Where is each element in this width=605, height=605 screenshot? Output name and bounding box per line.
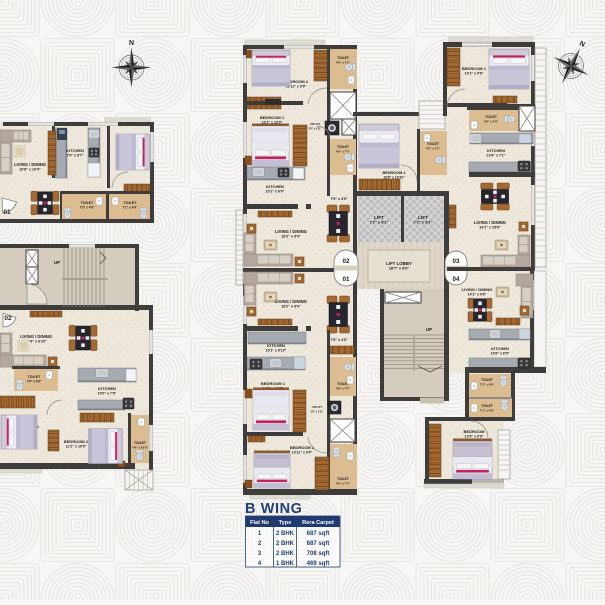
svg-text:UTILITY: UTILITY — [312, 405, 323, 409]
svg-text:03: 03 — [453, 258, 460, 265]
svg-text:469 sqft: 469 sqft — [307, 561, 330, 567]
svg-text:BEDROOM 1: BEDROOM 1 — [462, 66, 487, 71]
svg-text:TOILET: TOILET — [81, 201, 95, 205]
svg-text:7'2" x 8'1": 7'2" x 8'1" — [413, 220, 432, 225]
svg-text:2 BHK: 2 BHK — [276, 531, 295, 537]
svg-text:KITCHEN: KITCHEN — [266, 184, 284, 189]
svg-text:2'6" x 2'11": 2'6" x 2'11" — [309, 128, 322, 131]
svg-text:TOILET: TOILET — [337, 56, 350, 60]
svg-text:4'6" x 7'7": 4'6" x 7'7" — [336, 387, 351, 391]
svg-text:14'1" x 15'6": 14'1" x 15'6" — [479, 226, 501, 230]
svg-text:19'2" x 9'9": 19'2" x 9'9" — [281, 235, 301, 239]
svg-text:13'11" x 9'9": 13'11" x 9'9" — [292, 451, 313, 455]
svg-text:LIVING / DINING: LIVING / DINING — [20, 334, 52, 339]
svg-text:02: 02 — [4, 315, 12, 322]
svg-text:Rera Carpet: Rera Carpet — [302, 520, 334, 526]
svg-text:TOILET: TOILET — [337, 145, 350, 149]
svg-text:BEDROOM: BEDROOM — [464, 429, 486, 434]
svg-text:04: 04 — [453, 276, 460, 283]
svg-text:UP: UP — [54, 260, 60, 265]
svg-text:7'0" x 4'9": 7'0" x 4'9" — [26, 380, 42, 384]
svg-text:4'9" x 10'0": 4'9" x 10'0" — [132, 446, 148, 450]
svg-text:7'1" x 4'9": 7'1" x 4'9" — [122, 206, 138, 210]
svg-text:Flat No: Flat No — [250, 520, 270, 526]
svg-text:BEDROOM 1: BEDROOM 1 — [260, 115, 285, 120]
svg-text:7'1" x 4'6": 7'1" x 4'6" — [480, 383, 495, 387]
svg-text:LIVING / DINING: LIVING / DINING — [474, 220, 506, 225]
svg-text:UP: UP — [426, 327, 432, 332]
svg-text:5'6" x 4'9": 5'6" x 4'9" — [484, 120, 499, 124]
svg-text:7'0" x 4'9": 7'0" x 4'9" — [79, 206, 95, 210]
svg-text:10'4" x 7'1": 10'4" x 7'1" — [487, 154, 506, 158]
svg-text:2'6" x 2'11": 2'6" x 2'11" — [311, 411, 324, 414]
svg-text:TOILET: TOILET — [134, 441, 147, 445]
svg-text:18'7" x 8'0": 18'7" x 8'0" — [389, 266, 410, 271]
svg-text:12'1" x 10'0": 12'1" x 10'0" — [66, 445, 87, 449]
svg-text:TOILET: TOILET — [124, 201, 138, 205]
svg-text:LIVING / DINING: LIVING / DINING — [462, 287, 493, 292]
svg-text:10'1" x 6'10": 10'1" x 6'10" — [266, 349, 287, 353]
svg-text:2 BHK: 2 BHK — [276, 541, 295, 547]
svg-text:10'0" x 7'6": 10'0" x 7'6" — [98, 392, 117, 396]
svg-text:687 sqft: 687 sqft — [307, 541, 330, 547]
svg-text:10'1" x 6'9": 10'1" x 6'9" — [266, 190, 285, 194]
svg-text:TOILET: TOILET — [481, 378, 494, 382]
svg-text:2 BHK: 2 BHK — [276, 551, 295, 557]
svg-text:14'1" x 9'9": 14'1" x 9'9" — [465, 72, 484, 76]
svg-text:KITCHEN: KITCHEN — [487, 148, 505, 153]
svg-text:4'9" x 7'7": 4'9" x 7'7" — [336, 150, 351, 154]
svg-text:10'8" x 10'4": 10'8" x 10'4" — [19, 168, 41, 172]
svg-text:1 BHK: 1 BHK — [276, 561, 295, 567]
svg-text:TOILET: TOILET — [485, 115, 498, 119]
svg-text:TOILET: TOILET — [28, 375, 42, 379]
svg-text:02: 02 — [343, 258, 350, 265]
svg-text:KITCHEN: KITCHEN — [267, 343, 285, 348]
svg-text:01: 01 — [3, 209, 11, 216]
svg-text:12'9" x 9'9": 12'9" x 9'9" — [465, 435, 484, 439]
svg-text:KITCHEN: KITCHEN — [98, 386, 116, 391]
svg-text:TOILET: TOILET — [481, 404, 494, 408]
svg-text:7'9" x 4'9": 7'9" x 4'9" — [330, 197, 347, 201]
svg-text:7'2" x 8'1": 7'2" x 8'1" — [369, 220, 388, 225]
svg-text:UTILITY: UTILITY — [310, 122, 321, 126]
svg-text:BEDROOM 2: BEDROOM 2 — [64, 439, 89, 444]
svg-text:4'9" x 7'7": 4'9" x 7'7" — [336, 482, 351, 486]
svg-text:N: N — [129, 40, 134, 47]
svg-text:BEDROOM 1: BEDROOM 1 — [261, 381, 286, 386]
svg-text:7'1" x 4'6": 7'1" x 4'6" — [480, 409, 495, 413]
svg-text:4'2" x 7'1": 4'2" x 7'1" — [426, 147, 441, 151]
svg-text:KITCHEN: KITCHEN — [66, 148, 84, 153]
svg-text:TOILET: TOILET — [337, 477, 350, 481]
svg-text:LIVING / DINING: LIVING / DINING — [14, 162, 46, 167]
svg-text:7'9" x 4'9": 7'9" x 4'9" — [330, 338, 347, 342]
svg-text:KITCHEN: KITCHEN — [491, 346, 509, 351]
svg-text:10'6" x 6'9": 10'6" x 6'9" — [491, 352, 510, 356]
svg-text:BEDROOM 2: BEDROOM 2 — [383, 171, 406, 175]
svg-text:Type: Type — [279, 520, 292, 526]
svg-text:TOILET: TOILET — [427, 142, 440, 146]
svg-text:19'2" x 9'9": 19'2" x 9'9" — [281, 305, 301, 309]
svg-text:7'0" x 8'7": 7'0" x 8'7" — [67, 154, 84, 158]
svg-text:708 sqft: 708 sqft — [307, 551, 330, 557]
svg-text:14'1" x 9'6": 14'1" x 9'6" — [468, 293, 487, 297]
svg-text:B WING: B WING — [245, 501, 303, 517]
svg-text:01: 01 — [343, 276, 350, 283]
svg-text:LIVING / DINING: LIVING / DINING — [275, 299, 307, 304]
svg-text:LIVING / DINING: LIVING / DINING — [275, 229, 307, 234]
svg-text:687 sqft: 687 sqft — [307, 531, 330, 537]
